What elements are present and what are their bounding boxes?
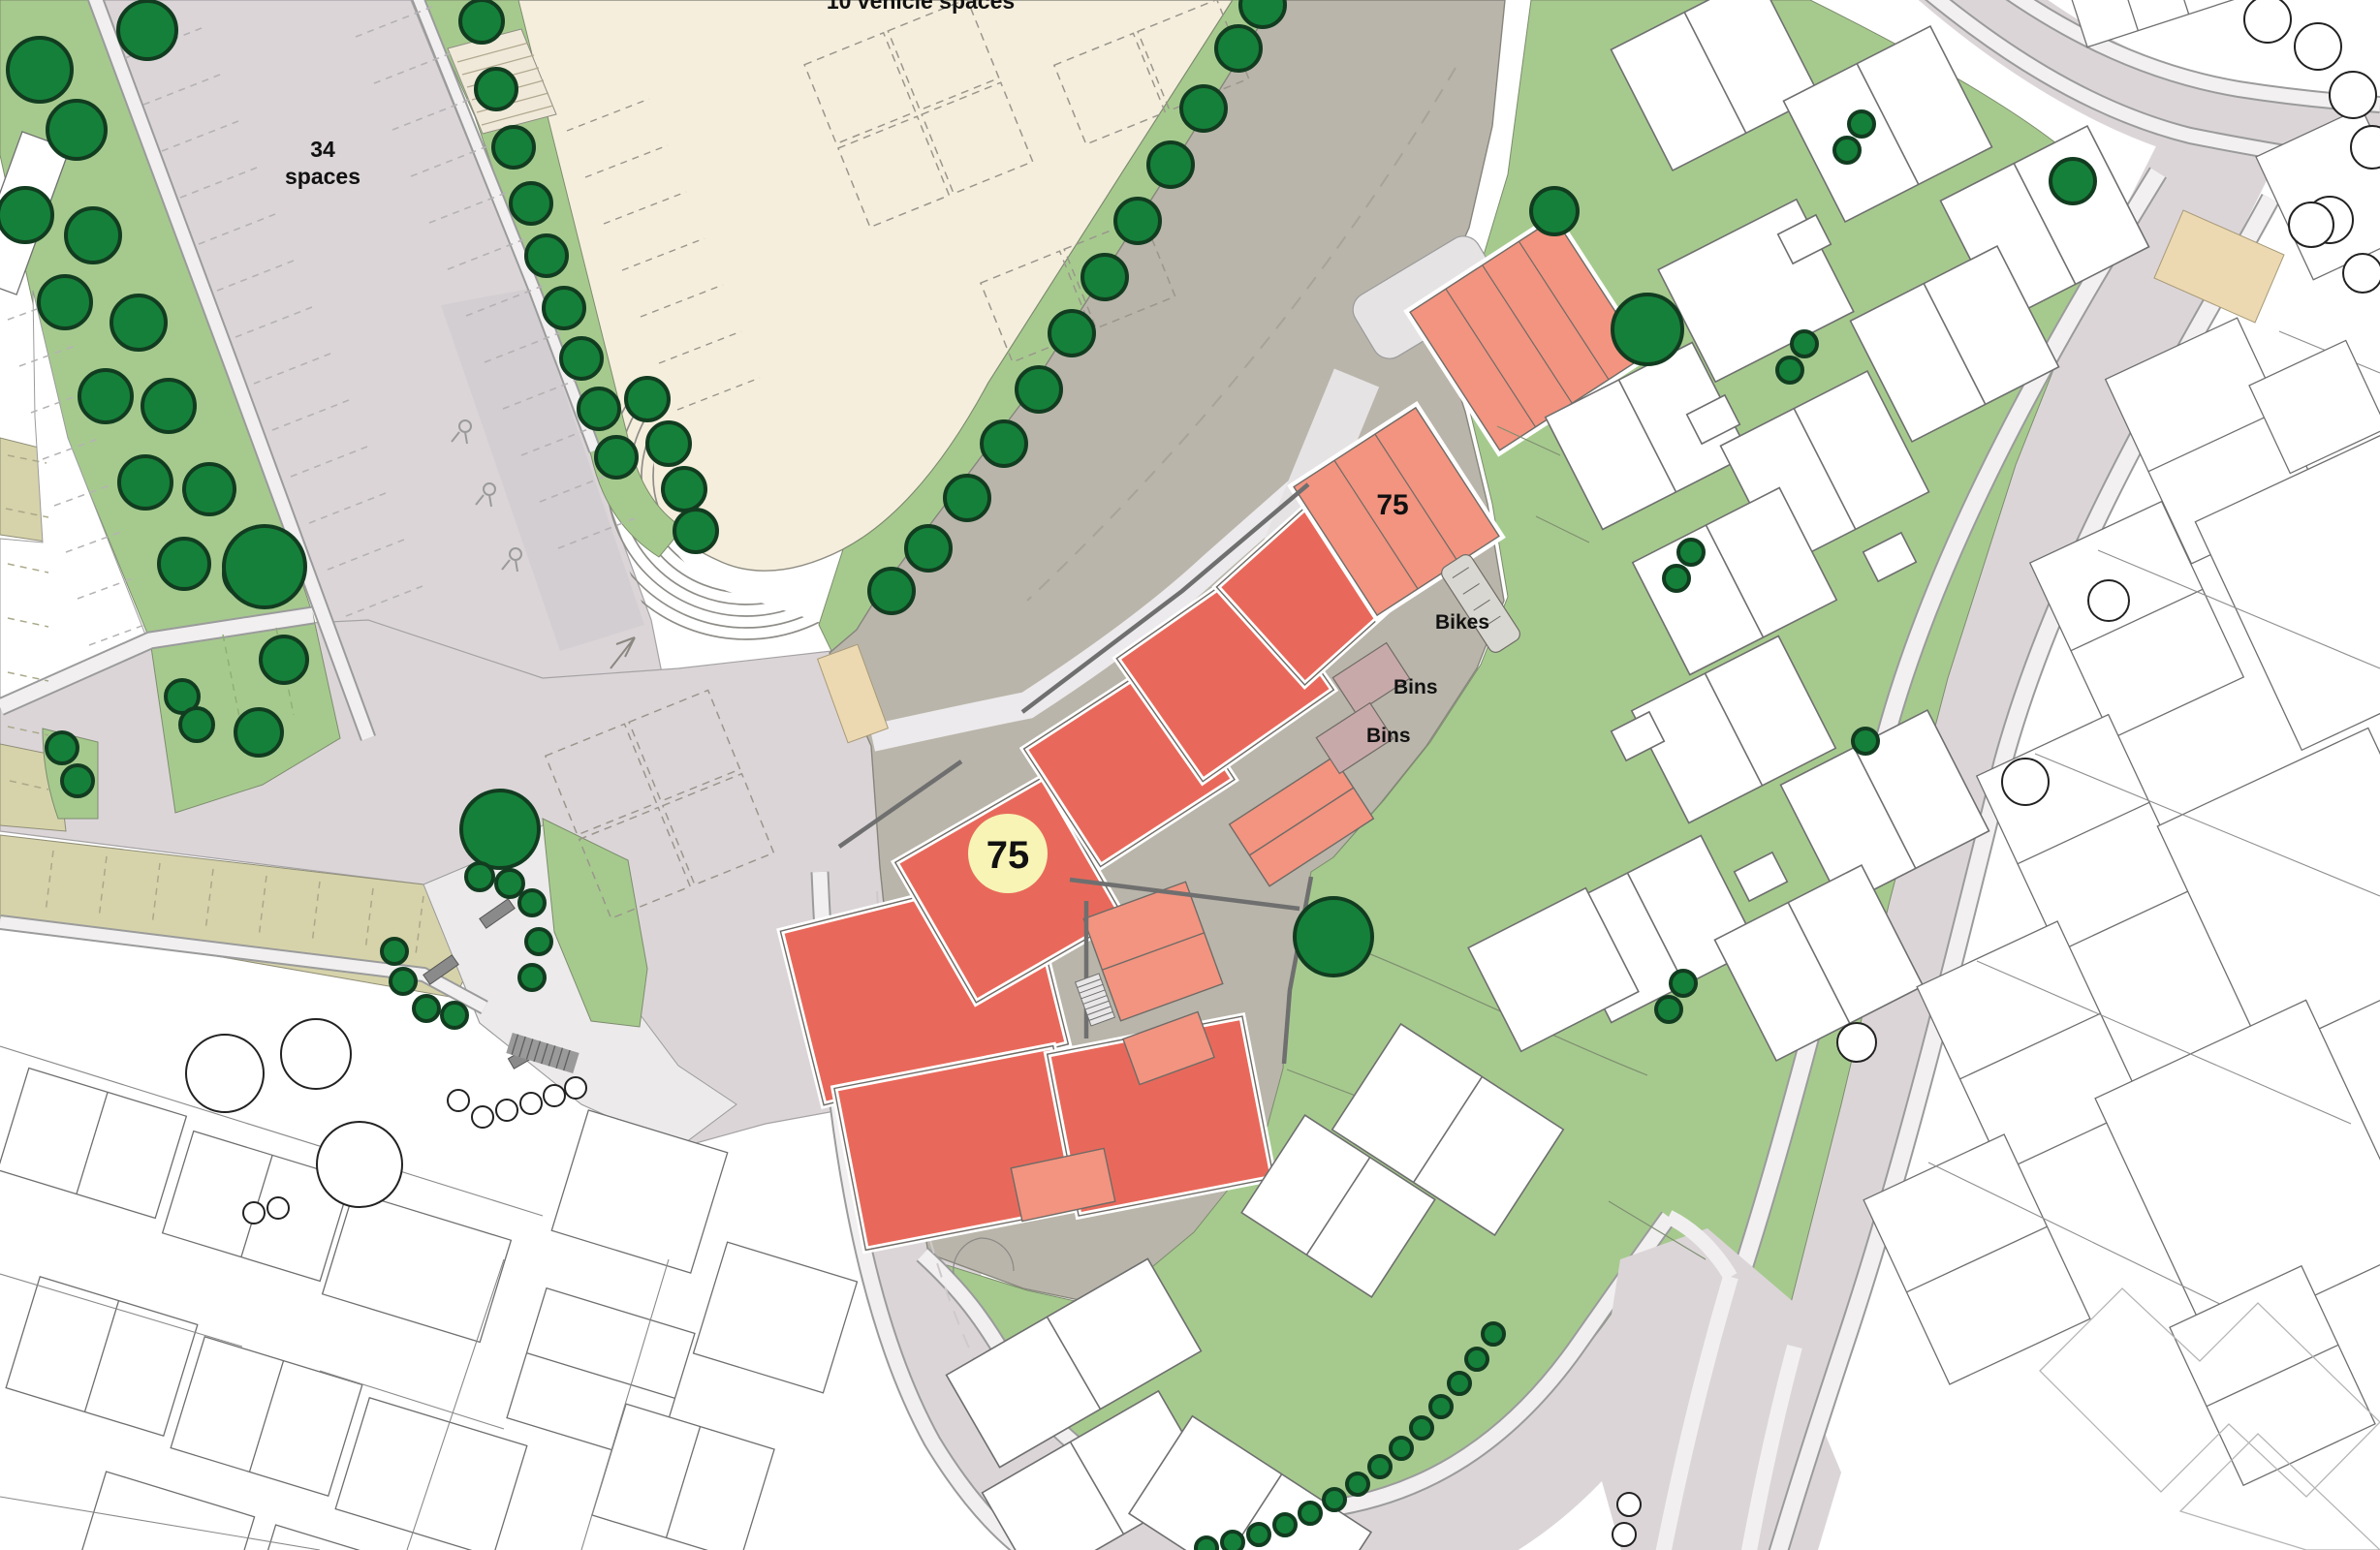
svg-text:spaces: spaces bbox=[285, 164, 360, 189]
svg-text:34: 34 bbox=[310, 137, 335, 162]
svg-text:75: 75 bbox=[986, 834, 1030, 877]
svg-text:Bins: Bins bbox=[1366, 725, 1411, 747]
svg-text:Bikes: Bikes bbox=[1435, 611, 1489, 634]
svg-text:75: 75 bbox=[1376, 489, 1408, 521]
svg-text:10 vehicle spaces: 10 vehicle spaces bbox=[827, 0, 1015, 14]
svg-text:Bins: Bins bbox=[1394, 676, 1438, 698]
